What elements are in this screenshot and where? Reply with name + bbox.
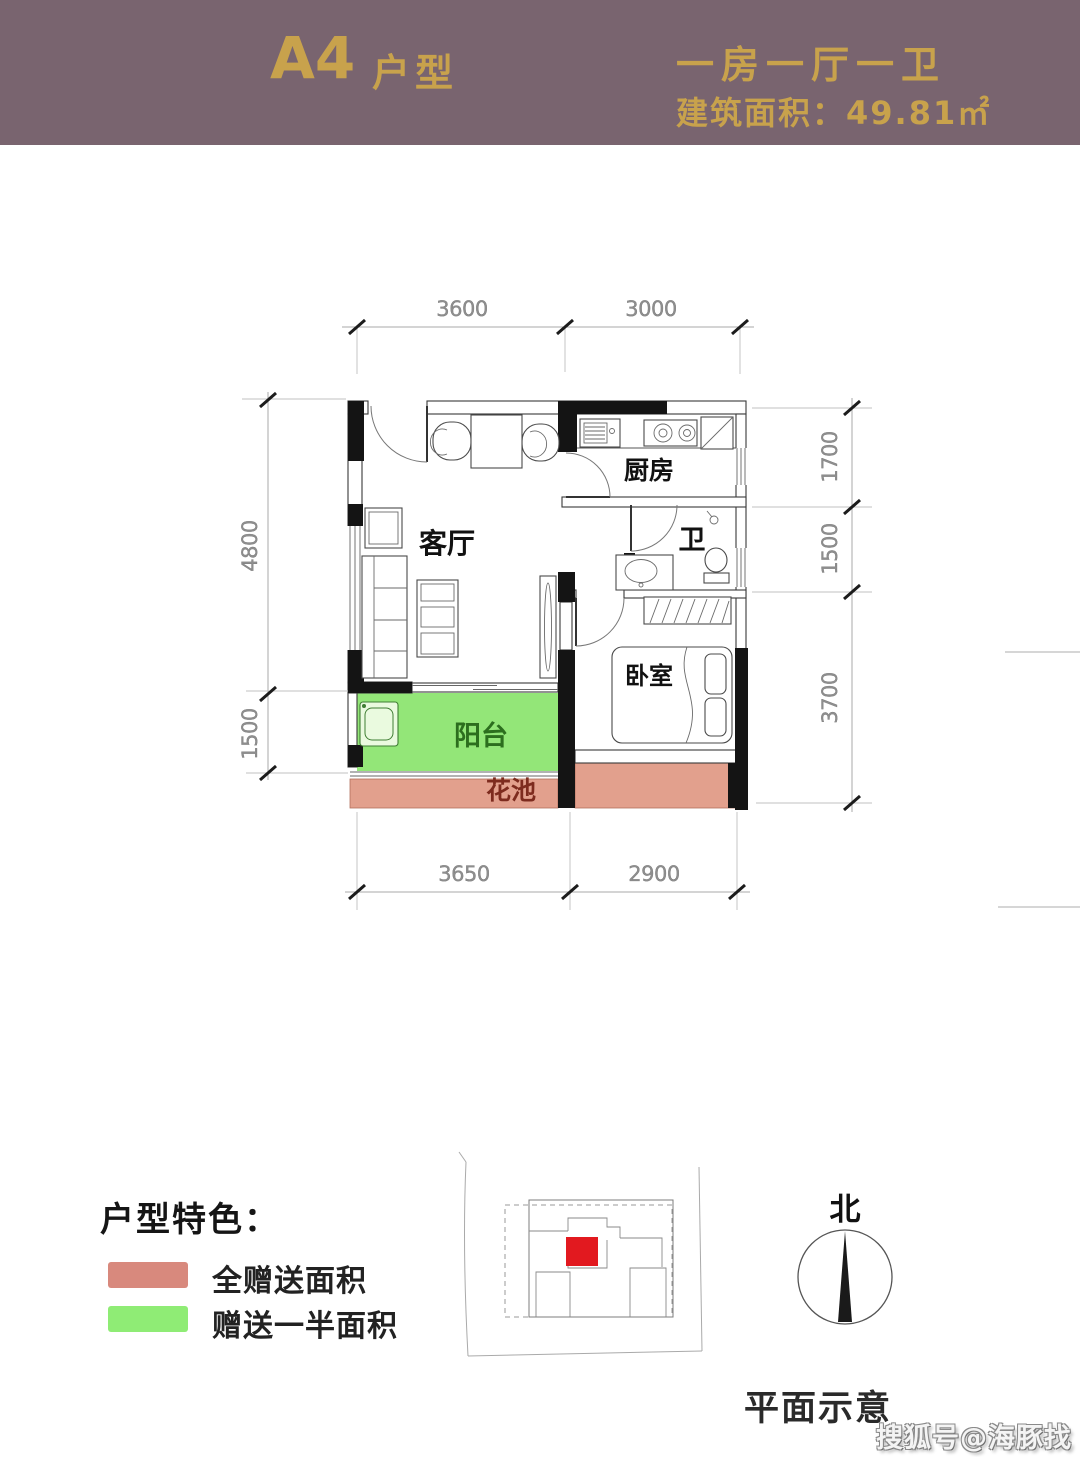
bathroom-label: 卫 bbox=[679, 525, 706, 556]
dimension-right-bedroom: 3700 bbox=[818, 672, 842, 723]
scan-artifact-line bbox=[998, 906, 1080, 908]
unit-code: A4 bbox=[270, 24, 355, 92]
layout-type: 一房一厅一卫 bbox=[676, 34, 946, 89]
dimension-bottom-right: 2900 bbox=[628, 862, 679, 886]
header-band: A4 户型 一房一厅一卫 建筑面积：49.81㎡ bbox=[0, 0, 1080, 145]
dimension-top-right: 3000 bbox=[625, 297, 676, 321]
built-area: 建筑面积：49.81㎡ bbox=[676, 88, 991, 134]
compass: 北 bbox=[785, 1182, 910, 1332]
legend-label-full-bonus: 全赠送面积 bbox=[212, 1256, 367, 1300]
watermark: 搜狐号@海豚找房 bbox=[876, 1416, 1080, 1457]
bedroom-label: 卧室 bbox=[625, 662, 673, 690]
dimension-left-upper: 4800 bbox=[238, 520, 262, 571]
dimensions-top: 3600 3000 bbox=[342, 297, 754, 374]
dimensions-left: 4800 1500 bbox=[238, 392, 348, 780]
dimensions-right: 1700 1500 3700 bbox=[752, 398, 872, 812]
dimensions-bottom: 3650 2900 bbox=[345, 812, 750, 910]
legend-swatch-half-bonus bbox=[108, 1306, 188, 1332]
washing-machine bbox=[360, 702, 398, 746]
floor-plan-poster: A4 户型 一房一厅一卫 建筑面积：49.81㎡ bbox=[0, 0, 1080, 1457]
unit-location-marker bbox=[566, 1237, 598, 1266]
north-needle-icon bbox=[838, 1231, 852, 1322]
kitchen-label: 厨房 bbox=[624, 456, 674, 485]
unit-code-suffix: 户型 bbox=[372, 42, 458, 97]
flower-bed-label: 花池 bbox=[486, 776, 536, 805]
kitchen-fixtures bbox=[577, 417, 736, 449]
site-key-plan bbox=[450, 1148, 710, 1363]
dimension-top-left: 3600 bbox=[436, 297, 487, 321]
site-plan-caption: 平面示意 bbox=[744, 1380, 892, 1431]
scan-artifact-line bbox=[1005, 651, 1080, 653]
dimension-bottom-left: 3650 bbox=[438, 862, 489, 886]
living-room-label: 客厅 bbox=[419, 527, 475, 560]
dimension-right-kitchen: 1700 bbox=[818, 431, 842, 482]
balcony-label: 阳台 bbox=[454, 720, 508, 752]
legend-label-half-bonus: 赠送一半面积 bbox=[212, 1301, 398, 1345]
legend-title: 户型特色： bbox=[100, 1192, 280, 1241]
legend-swatch-full-bonus bbox=[108, 1262, 188, 1288]
dimension-right-bath: 1500 bbox=[818, 523, 842, 574]
dimension-left-lower: 1500 bbox=[238, 708, 262, 759]
floor-plan-drawing: 客厅 厨房 卫 卧室 阳台 花池 3600 3000 3650 bbox=[230, 270, 890, 920]
north-label: 北 bbox=[830, 1192, 861, 1228]
